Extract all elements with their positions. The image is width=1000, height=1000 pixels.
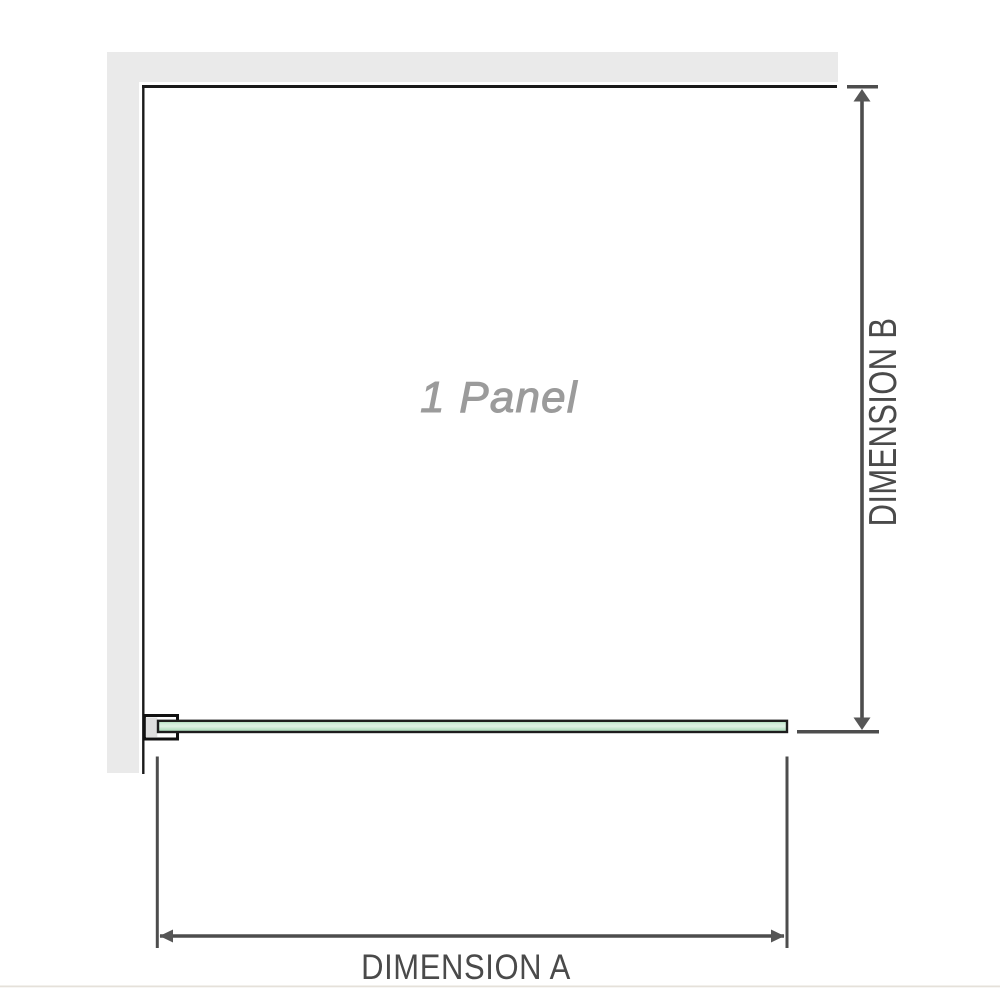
svg-text:DIMENSION A: DIMENSION A: [361, 948, 571, 987]
svg-text:1 Panel: 1 Panel: [420, 373, 578, 422]
svg-text:DIMENSION B: DIMENSION B: [862, 318, 905, 527]
